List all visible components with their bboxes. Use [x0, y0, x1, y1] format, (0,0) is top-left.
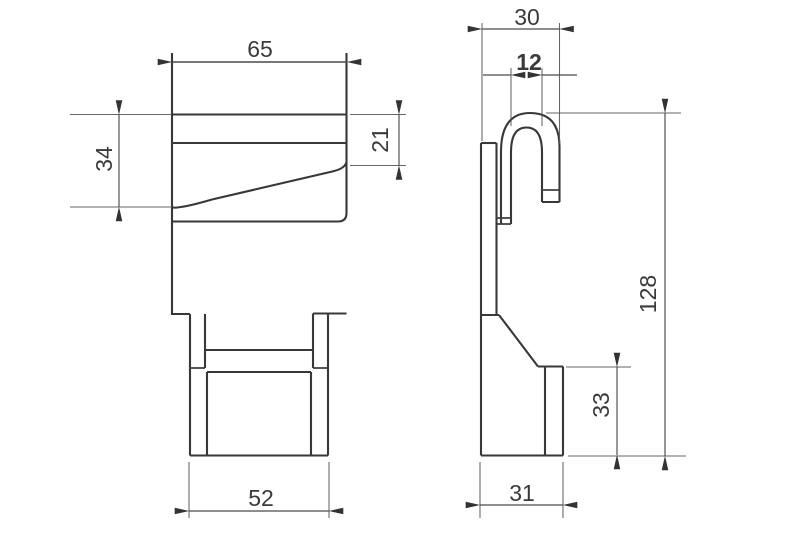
front-right-edge-and-mid-shoulder [172, 53, 347, 222]
technical-drawing: 65 34 21 52 30 [0, 0, 800, 552]
dim-label-21: 21 [367, 127, 393, 153]
side-view-dimensions: 30 12 128 33 31 [480, 4, 686, 518]
dim-label-31: 31 [509, 480, 535, 506]
front-view-dimensions: 65 34 21 52 [70, 36, 406, 518]
side-hook-outer-bend [501, 113, 560, 224]
ext-lines-34 [70, 115, 172, 208]
dim-label-34: 34 [91, 146, 117, 172]
side-taper-diagonal [499, 315, 538, 367]
front-view-outline [172, 53, 347, 456]
side-view-outline [481, 113, 563, 456]
dim-label-52: 52 [248, 485, 274, 511]
dim-label-12: 12 [516, 49, 542, 75]
side-hook-slot [511, 128, 542, 225]
dim-label-30: 30 [514, 4, 540, 30]
dim-label-33: 33 [588, 392, 614, 418]
front-socket-inner-walls [207, 372, 311, 456]
drawing-canvas: 65 34 21 52 30 [0, 0, 800, 552]
dim-label-65: 65 [247, 36, 273, 62]
side-hook-left-leg-tip [497, 218, 512, 224]
ext-lines-30 [482, 23, 560, 144]
front-notch-diagonal [172, 162, 346, 208]
dim-label-128: 128 [635, 275, 661, 313]
